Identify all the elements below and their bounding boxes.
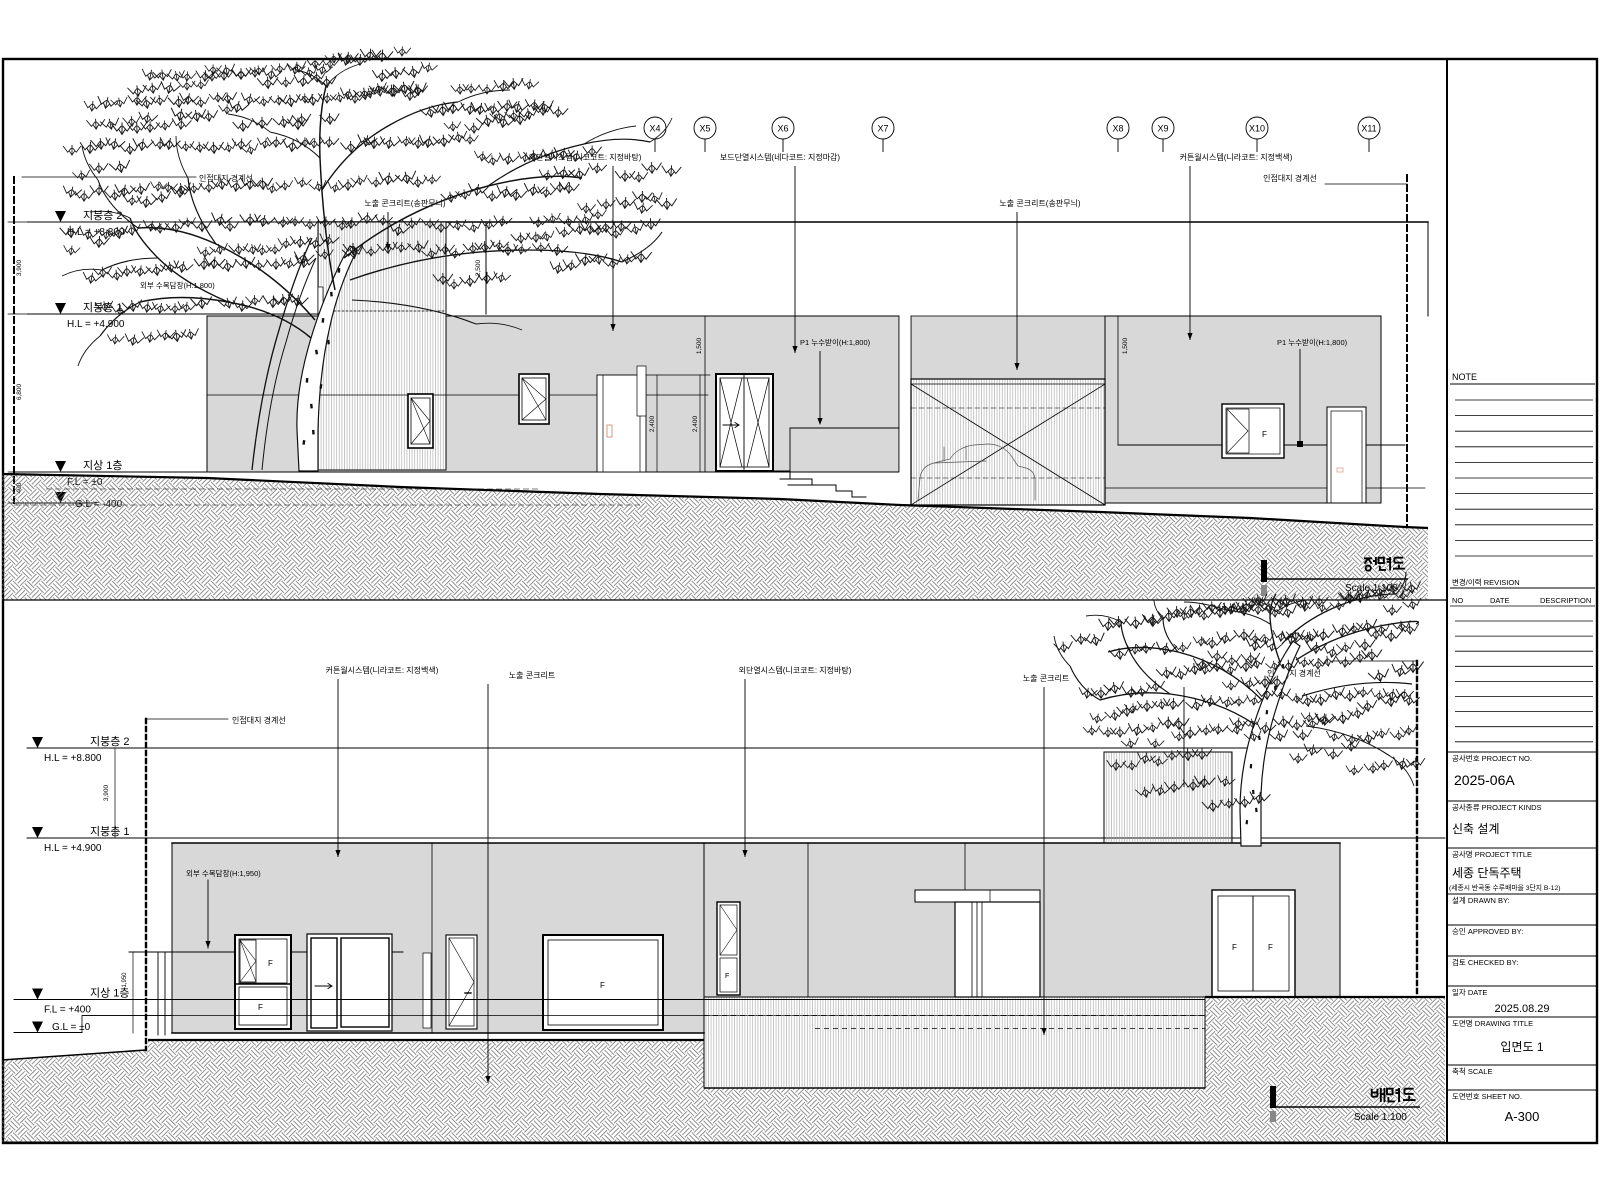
svg-text:X7: X7 — [877, 124, 888, 134]
svg-text:G.L = ±0: G.L = ±0 — [52, 1022, 91, 1033]
svg-text:P1 누수받이(H:1,800): P1 누수받이(H:1,800) — [800, 337, 871, 347]
svg-text:검토 CHECKED BY:: 검토 CHECKED BY: — [1452, 957, 1518, 967]
svg-text:NOTE: NOTE — [1452, 372, 1477, 382]
svg-text:지붕층 1: 지붕층 1 — [90, 825, 130, 838]
svg-text:노출 콘크리트: 노출 콘크리트 — [509, 670, 555, 680]
svg-text:외부 수목담장(H:1,950): 외부 수목담장(H:1,950) — [186, 868, 261, 878]
svg-text:지붕층 2: 지붕층 2 — [90, 735, 130, 748]
svg-text:인접대지 경계선: 인접대지 경계선 — [1263, 173, 1317, 183]
svg-text:X6: X6 — [777, 124, 788, 134]
svg-text:X9: X9 — [1157, 124, 1168, 134]
svg-text:승인 APPROVED BY:: 승인 APPROVED BY: — [1452, 926, 1523, 936]
svg-text:H.L = +8.800: H.L = +8.800 — [44, 753, 102, 764]
svg-text:노출 콘크리트(송판무늬): 노출 콘크리트(송판무늬) — [364, 198, 445, 208]
svg-text:변경/이력 REVISION: 변경/이력 REVISION — [1452, 577, 1520, 587]
svg-text:1,500: 1,500 — [1122, 337, 1129, 354]
svg-text:공사번호 PROJECT NO.: 공사번호 PROJECT NO. — [1452, 754, 1532, 763]
svg-text:F: F — [1262, 430, 1267, 439]
svg-text:입면도 1: 입면도 1 — [1500, 1040, 1543, 1054]
svg-text:X8: X8 — [1112, 124, 1123, 134]
svg-text:지상 1층: 지상 1층 — [83, 459, 123, 472]
svg-text:일자 DATE: 일자 DATE — [1452, 988, 1487, 997]
svg-text:공사명 PROJECT TITLE: 공사명 PROJECT TITLE — [1452, 849, 1532, 859]
svg-text:2,500: 2,500 — [475, 259, 482, 276]
svg-text:F: F — [258, 1003, 263, 1012]
svg-text:2025-06A: 2025-06A — [1454, 772, 1515, 788]
svg-text:세종 단독주택: 세종 단독주택 — [1452, 866, 1522, 880]
svg-text:X5: X5 — [699, 124, 710, 134]
svg-text:노출 콘크리트: 노출 콘크리트 — [1023, 673, 1069, 683]
svg-text:보드단열시스템(네다코트: 지정마감): 보드단열시스템(네다코트: 지정마감) — [720, 152, 841, 162]
svg-text:Scale 1:100: Scale 1:100 — [1354, 1112, 1407, 1123]
svg-text:H.L = +4.900: H.L = +4.900 — [44, 843, 102, 854]
svg-text:축척 SCALE: 축척 SCALE — [1452, 1067, 1492, 1076]
svg-text:X11: X11 — [1361, 124, 1376, 134]
svg-text:DESCRIPTION: DESCRIPTION — [1540, 596, 1591, 605]
svg-text:설계 DRAWN BY:: 설계 DRAWN BY: — [1452, 895, 1510, 905]
svg-text:신축 설계: 신축 설계 — [1452, 822, 1500, 836]
svg-text:1,500: 1,500 — [696, 337, 703, 354]
svg-text:(세종시 반곡동 수루배마을 3단지 B-12): (세종시 반곡동 수루배마을 3단지 B-12) — [1449, 883, 1561, 892]
svg-text:2,400: 2,400 — [649, 415, 656, 432]
svg-text:X4: X4 — [649, 124, 660, 134]
svg-text:2025.08.29: 2025.08.29 — [1494, 1003, 1549, 1015]
svg-text:F.L = +400: F.L = +400 — [44, 1005, 91, 1016]
svg-text:도면명 DRAWING TITLE: 도면명 DRAWING TITLE — [1452, 1018, 1533, 1028]
svg-text:도면번호 SHEET NO.: 도면번호 SHEET NO. — [1452, 1091, 1522, 1101]
svg-text:P1 누수받이(H:1,800): P1 누수받이(H:1,800) — [1277, 337, 1348, 347]
svg-text:H.L = +4.900: H.L = +4.900 — [67, 319, 125, 330]
svg-text:인접대지 경계선: 인접대지 경계선 — [232, 715, 286, 725]
svg-text:F: F — [725, 973, 729, 980]
svg-text:F: F — [1268, 943, 1273, 952]
svg-text:커튼월시스템(니라코트: 지정백색): 커튼월시스템(니라코트: 지정백색) — [1180, 152, 1293, 162]
svg-text:노출 콘크리트(송판무늬): 노출 콘크리트(송판무늬) — [999, 198, 1080, 208]
svg-text:인접대지 경계선: 인접대지 경계선 — [199, 173, 253, 183]
svg-text:NO: NO — [1452, 596, 1463, 605]
svg-text:3,900: 3,900 — [16, 259, 23, 276]
svg-text:3,900: 3,900 — [103, 784, 110, 801]
svg-text:외부 수목담장(H:1,800): 외부 수목담장(H:1,800) — [140, 280, 215, 290]
svg-text:2,400: 2,400 — [692, 415, 699, 432]
svg-text:X10: X10 — [1249, 124, 1265, 134]
svg-text:F: F — [268, 959, 273, 968]
svg-text:외단열시스템(니코코트: 지정바탕): 외단열시스템(니코코트: 지정바탕) — [739, 665, 852, 675]
svg-text:1,950: 1,950 — [122, 972, 128, 988]
svg-text:공사종류 PROJECT KINDS: 공사종류 PROJECT KINDS — [1452, 803, 1542, 812]
svg-text:A-300: A-300 — [1505, 1109, 1540, 1124]
svg-text:F: F — [600, 981, 605, 990]
svg-text:외단열시스템(니코코트: 지정바탕): 외단열시스템(니코코트: 지정바탕) — [529, 152, 642, 162]
svg-text:DATE: DATE — [1490, 596, 1509, 605]
svg-text:F: F — [1232, 943, 1237, 952]
svg-text:커튼월시스템(니라코트: 지정백색): 커튼월시스템(니라코트: 지정백색) — [326, 665, 439, 675]
svg-text:6,800: 6,800 — [16, 383, 23, 400]
